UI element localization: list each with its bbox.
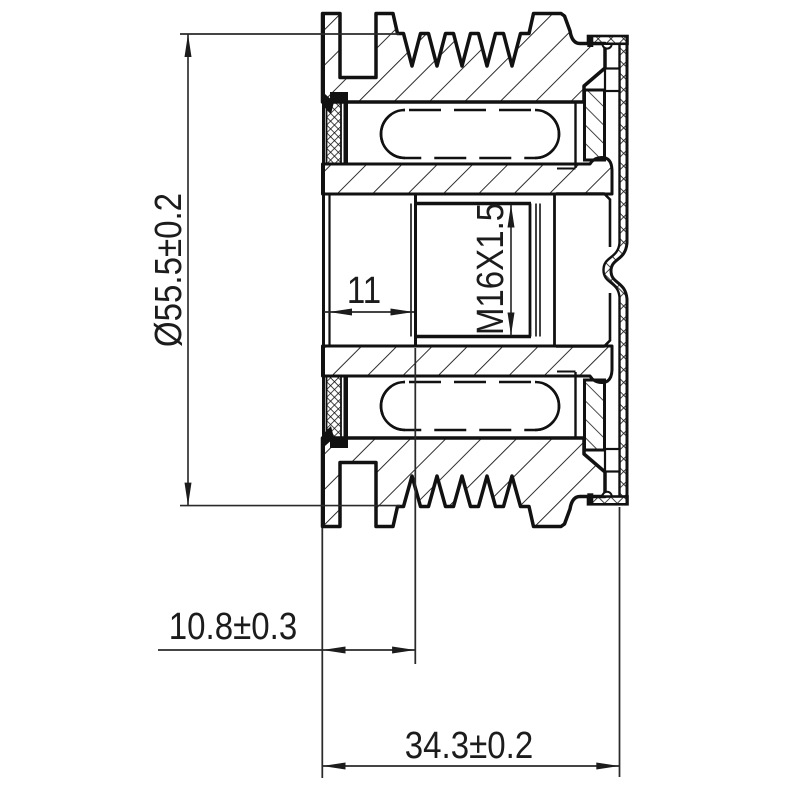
svg-text:Ø55.5±0.2: Ø55.5±0.2 xyxy=(147,193,190,347)
svg-text:34.3±0.2: 34.3±0.2 xyxy=(405,724,533,767)
svg-text:11: 11 xyxy=(347,269,381,312)
svg-text:10.8±0.3: 10.8±0.3 xyxy=(169,605,297,648)
svg-text:M16X1.5: M16X1.5 xyxy=(469,203,512,335)
